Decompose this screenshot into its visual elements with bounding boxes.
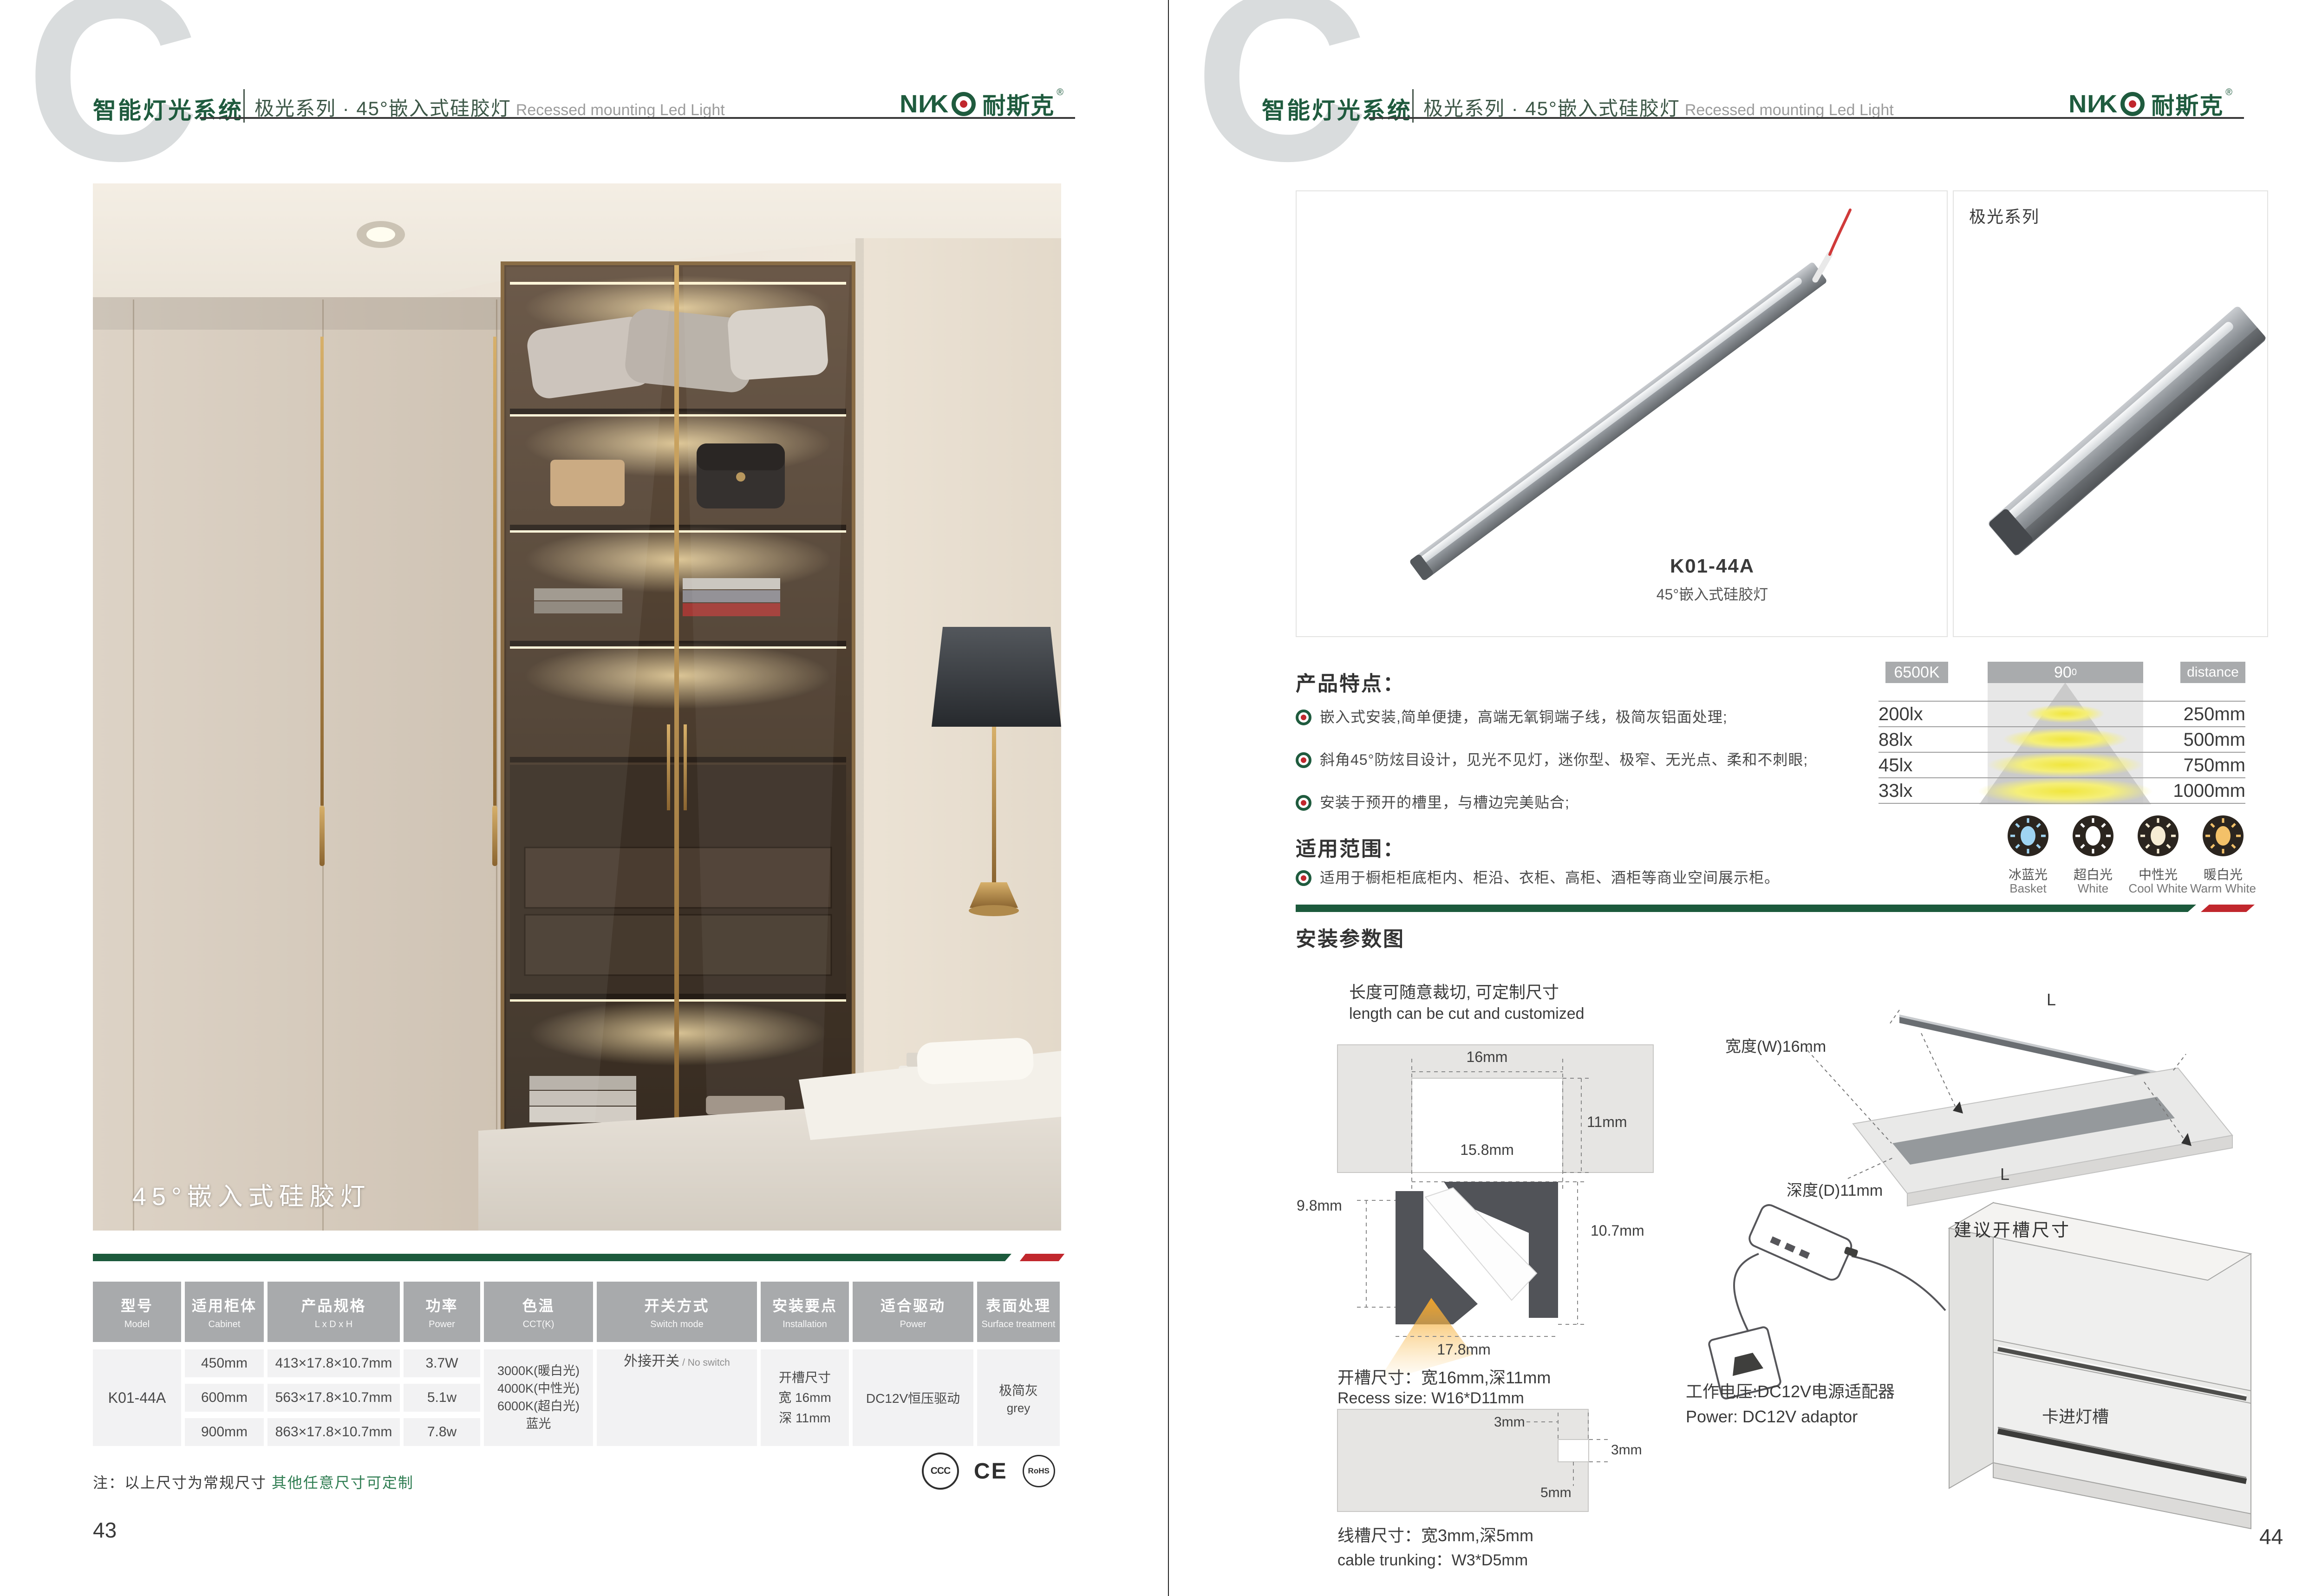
recess-size-zh: 开槽尺寸：宽16mm,深11mm bbox=[1337, 1364, 1551, 1388]
board-width-label: 宽度(W)16mm bbox=[1725, 1034, 1826, 1056]
ccc-icon: CCC bbox=[922, 1453, 959, 1490]
power-label-en: Power: DC12V adaptor bbox=[1686, 1407, 1858, 1427]
beam-dist-750: 750mm bbox=[2143, 755, 2245, 776]
board-diagram bbox=[1807, 1010, 2232, 1206]
cut-note-en: length can be cut and customized bbox=[1349, 1005, 1585, 1023]
cell-spec-900: 863×17.8×10.7mm bbox=[267, 1418, 400, 1446]
col-header-driver: 适合驱动Power bbox=[853, 1282, 973, 1342]
col-header-switch: 开关方式Switch mode bbox=[597, 1282, 757, 1342]
bullet-icon bbox=[1296, 752, 1311, 768]
page-number-left: 43 bbox=[93, 1518, 117, 1543]
board-L-strip: L bbox=[2047, 990, 2056, 1010]
divider-red bbox=[2201, 905, 2255, 912]
rohs-icon: RoHS bbox=[1023, 1455, 1055, 1487]
cut-note-zh: 长度可随意裁切, 可定制尺寸 bbox=[1349, 979, 1559, 1003]
series-label: 极光系列 bbox=[1969, 203, 2040, 228]
col-header-spec: 产品规格L x D x H bbox=[267, 1282, 400, 1342]
dim-notch-depth: 5mm bbox=[1540, 1485, 1572, 1501]
product-model-sub: 45°嵌入式硅胶灯 bbox=[1619, 583, 1805, 604]
size-note: 注：以上尺寸为常规尺寸 其他任意尺寸可定制 bbox=[93, 1471, 414, 1492]
logo-registered-mark: ® bbox=[1057, 87, 1063, 98]
dim-notch-width: 3mm bbox=[1494, 1414, 1525, 1430]
clip-label: 卡进灯槽 bbox=[2042, 1403, 2109, 1427]
divider-green bbox=[93, 1254, 1011, 1261]
beam-lux-45: 45lx bbox=[1878, 755, 1912, 776]
cell-power-450: 3.7W bbox=[404, 1349, 480, 1377]
beam-dist-500: 500mm bbox=[2143, 730, 2245, 750]
nisko-logo: NI∕K 耐斯克 ® bbox=[900, 87, 1063, 121]
cell-cabinet-450: 450mm bbox=[185, 1349, 264, 1377]
power-label-zh: 工作电压:DC12V电源适配器 bbox=[1686, 1378, 1895, 1402]
cell-driver: DC12V恒压驱动 bbox=[853, 1349, 973, 1446]
bullet-icon bbox=[1296, 795, 1311, 811]
board-caption: 建议开槽尺寸 bbox=[1954, 1216, 2071, 1241]
trunk-size-en: cable trunking：W3*D5mm bbox=[1337, 1547, 1528, 1570]
cell-model: K01-44A bbox=[93, 1349, 181, 1446]
cell-power-600: 5.1w bbox=[404, 1384, 480, 1412]
logo-latin: NI∕K bbox=[900, 90, 949, 118]
cell-spec-600: 563×17.8×10.7mm bbox=[267, 1384, 400, 1412]
beam-lux-33: 33lx bbox=[1878, 781, 1912, 801]
certification-marks: CCC CE RoHS bbox=[922, 1453, 1055, 1490]
cell-cct: 3000K(暖白光) 4000K(中性光) 6000K(超白光) 蓝光 bbox=[484, 1349, 593, 1446]
dim-profile-right: 10.7mm bbox=[1591, 1222, 1644, 1239]
power-adaptor-illustration bbox=[1708, 1202, 1945, 1399]
profile-closeup-photo bbox=[1987, 305, 2267, 557]
feature-item: 安装于预开的槽里，与槽边完美贴合; bbox=[1296, 792, 1570, 813]
board-depth-label: 深度(D)11mm bbox=[1787, 1178, 1883, 1200]
cell-install: 开槽尺寸 宽 16mm 深 11mm bbox=[761, 1349, 849, 1446]
cct-label-en: Warm White bbox=[2172, 881, 2274, 896]
col-header-cabinet: 适用柜体Cabinet bbox=[185, 1282, 264, 1342]
board-L-groove: L bbox=[2000, 1165, 2009, 1184]
photo-caption: 45°嵌入式硅胶灯 bbox=[132, 1176, 371, 1212]
logo-cn: 耐斯克 bbox=[982, 87, 1055, 121]
cct-bulb-icons bbox=[2008, 815, 2244, 856]
col-header-cct: 色温CCT(K) bbox=[484, 1282, 593, 1342]
page-title: 智能灯光系统 bbox=[93, 92, 243, 125]
catalog-spread: C 智能灯光系统 极光系列 · 45°嵌入式硅胶灯 Recessed mount… bbox=[0, 0, 2322, 1596]
logo-o-icon bbox=[952, 92, 976, 116]
beam-angle-box: 900 bbox=[1988, 662, 2143, 683]
dim-groove-depth: 11mm bbox=[1587, 1114, 1627, 1131]
col-header-model: 型号Model bbox=[93, 1282, 181, 1342]
cct-label-zh: 暖白光 bbox=[2179, 865, 2267, 883]
beam-dist-1000: 1000mm bbox=[2143, 781, 2245, 801]
led-bar-photo bbox=[1409, 210, 1850, 581]
scope-title: 适用范围： bbox=[1296, 832, 1405, 862]
dim-profile-bottom: 17.8mm bbox=[1422, 1341, 1506, 1358]
cell-power-900: 7.8w bbox=[404, 1418, 480, 1446]
bullet-icon bbox=[1296, 870, 1311, 886]
dim-groove-width: 16mm bbox=[1455, 1049, 1520, 1066]
beam-kelvin-box: 6500K bbox=[1885, 662, 1948, 683]
col-header-power: 功率Power bbox=[404, 1282, 480, 1342]
scope-item: 适用于橱柜柜底柜内、柜沿、衣柜、高柜、酒柜等商业空间展示柜。 bbox=[1296, 867, 1780, 888]
spec-table: 型号Model 适用柜体Cabinet 产品规格L x D x H 功率Powe… bbox=[93, 1282, 1063, 1446]
cell-cabinet-600: 600mm bbox=[185, 1384, 264, 1412]
trunk-size-zh: 线槽尺寸：宽3mm,深5mm bbox=[1337, 1522, 1533, 1546]
dim-notch-height: 3mm bbox=[1611, 1442, 1642, 1458]
cabinet-illustration bbox=[1949, 1203, 2251, 1529]
dim-groove-bottom: 15.8mm bbox=[1448, 1141, 1526, 1159]
cell-surface: 极简灰grey bbox=[977, 1349, 1060, 1446]
divider-red bbox=[1020, 1254, 1065, 1261]
feature-item: 斜角45°防炫目设计，见光不见灯，迷你型、极窄、无光点、柔和不刺眼; bbox=[1296, 749, 1808, 770]
product-model: K01-44A bbox=[1619, 555, 1805, 577]
page-right: C 智能灯光系统 极光系列 · 45°嵌入式硅胶灯 Recessed mount… bbox=[1169, 0, 2322, 1596]
cell-switch: 外接开关/ No switch bbox=[597, 1349, 757, 1446]
install-title: 安装参数图 bbox=[1296, 922, 1405, 952]
col-header-install: 安装要点Installation bbox=[761, 1282, 849, 1342]
page-number-right: 44 bbox=[2259, 1524, 2283, 1549]
beam-lux-88: 88lx bbox=[1878, 730, 1912, 750]
bullet-icon bbox=[1296, 710, 1311, 725]
page-left: C 智能灯光系统 极光系列 · 45°嵌入式硅胶灯 Recessed mount… bbox=[0, 0, 1168, 1596]
features-title: 产品特点： bbox=[1296, 667, 1405, 697]
col-header-surface: 表面处理Surface treatment bbox=[977, 1282, 1060, 1342]
beam-dist-250: 250mm bbox=[2143, 704, 2245, 725]
header-rule bbox=[200, 117, 1075, 119]
wardrobe-photo bbox=[93, 183, 1061, 1231]
cell-cabinet-900: 900mm bbox=[185, 1418, 264, 1446]
dim-profile-left: 9.8mm bbox=[1297, 1197, 1342, 1214]
cell-spec-450: 413×17.8×10.7mm bbox=[267, 1349, 400, 1377]
beam-lux-200: 200lx bbox=[1878, 704, 1923, 725]
divider-green bbox=[1296, 905, 2196, 912]
ce-icon: CE bbox=[974, 1459, 1008, 1484]
feature-item: 嵌入式安装,简单便捷，高端无氧铜端子线，极简灰铝面处理; bbox=[1296, 707, 1728, 728]
recess-size-en: Recess size: W16*D11mm bbox=[1337, 1389, 1524, 1407]
beam-distance-box: distance bbox=[2180, 662, 2245, 683]
